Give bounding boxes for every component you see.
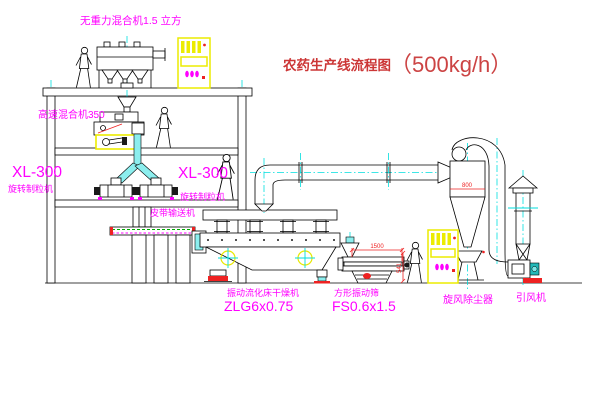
label-dryer-model: ZLG6x0.75 [224,298,293,314]
label-granulator-right-name: 旋转制粒机 [180,191,225,202]
belt-conveyor [110,227,206,283]
control-cabinet-top [178,38,210,88]
granulator-left [94,178,138,200]
label-gravity-mixer: 无重力混合机1.5 立方 [80,14,182,27]
page-title-capacity: （500kg/h） [390,52,512,77]
dim-cyclone: 800 [462,183,473,189]
exhaust-duct [250,153,458,213]
fan-motor-icon [530,263,539,275]
label-high-speed-mixer: 高速混合机350 [38,108,105,121]
vibrating-sieve [338,232,410,283]
label-granulator-left-model: XL-300 [12,164,62,181]
discharge-chute [133,207,151,227]
induced-draft-fan [508,260,542,283]
granulator-right [134,178,178,200]
label-belt-conveyor: 皮带输送机 [150,207,195,218]
label-granulator-left-name: 旋转制粒机 [8,183,53,194]
cad-drawing-page: 无重力混合机1.5 立方 农药生产线流程图 （500kg/h） 高速混合机350… [0,0,600,403]
person-figure [76,47,92,87]
indicator-dot-icon [203,44,206,47]
label-cyclone: 旋风除尘器 [443,293,493,306]
dim-sieve-height: 541 [397,262,403,273]
label-fan: 引风机 [516,291,546,304]
fluid-bed-dryer [200,210,340,284]
page-title: 农药生产线流程图 [282,57,391,73]
vibration-motor-icon [363,273,371,279]
person-figure [156,107,172,147]
indicator-dot-icon [453,237,456,240]
label-sieve-model: FS0.6x1.5 [332,298,396,314]
dim-sieve-length: 1500 [370,244,384,250]
label-granulator-right-model: XL-300 [178,165,228,182]
control-cabinet-bottom [428,230,458,283]
label-sieve-name: 方形振动筛 [334,287,379,298]
label-dryer-name: 振动流化床干燥机 [227,287,299,298]
process-flow-diagram: 无重力混合机1.5 立方 农药生产线流程图 （500kg/h） 高速混合机350… [0,0,600,403]
